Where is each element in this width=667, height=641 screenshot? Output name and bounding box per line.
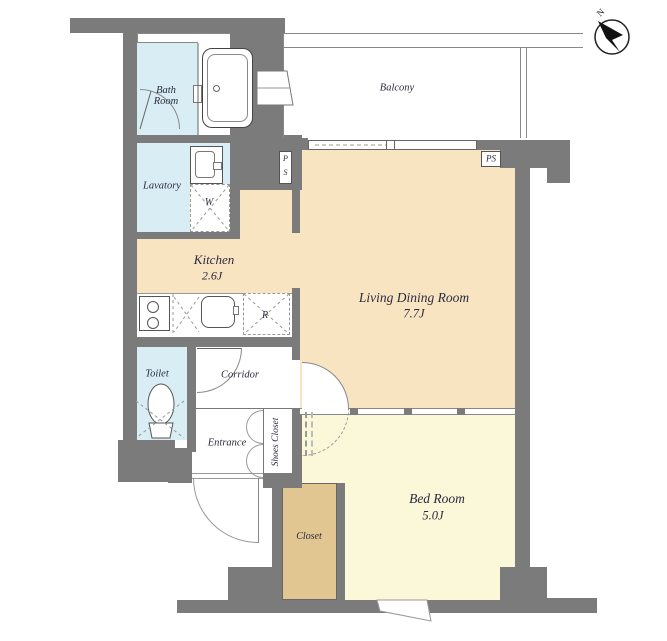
entrance-label: Entrance (208, 437, 247, 448)
floorplan: P S (0, 0, 667, 641)
living-dining-size-label: 7.7J (403, 307, 424, 320)
lavatory-label: Lavatory (143, 180, 181, 191)
pipe-space-right-label: PS (486, 154, 496, 163)
shoes-closet-label: Shoes Closet (272, 418, 282, 467)
kitchen-label: Kitchen (194, 253, 234, 267)
toilet-label: Toilet (145, 368, 169, 379)
refrigerator-label: R (262, 311, 268, 322)
living-dining-label: Living Dining Room (359, 291, 469, 305)
balcony-label: Balcony (380, 82, 414, 93)
compass-icon (595, 20, 629, 54)
washing-machine-label: W (205, 198, 213, 209)
closet-label: Closet (296, 532, 322, 543)
detail-layer (0, 0, 667, 641)
bath-room-label: Bath Room (154, 85, 179, 107)
bedroom-window (377, 600, 431, 621)
corridor-label: Corridor (221, 369, 259, 380)
toilet-fixture (148, 384, 174, 424)
kitchen-size-label: 2.6J (202, 270, 222, 283)
bedroom-size-label: 5.0J (422, 509, 443, 522)
bedroom-label: Bed Room (409, 492, 465, 506)
